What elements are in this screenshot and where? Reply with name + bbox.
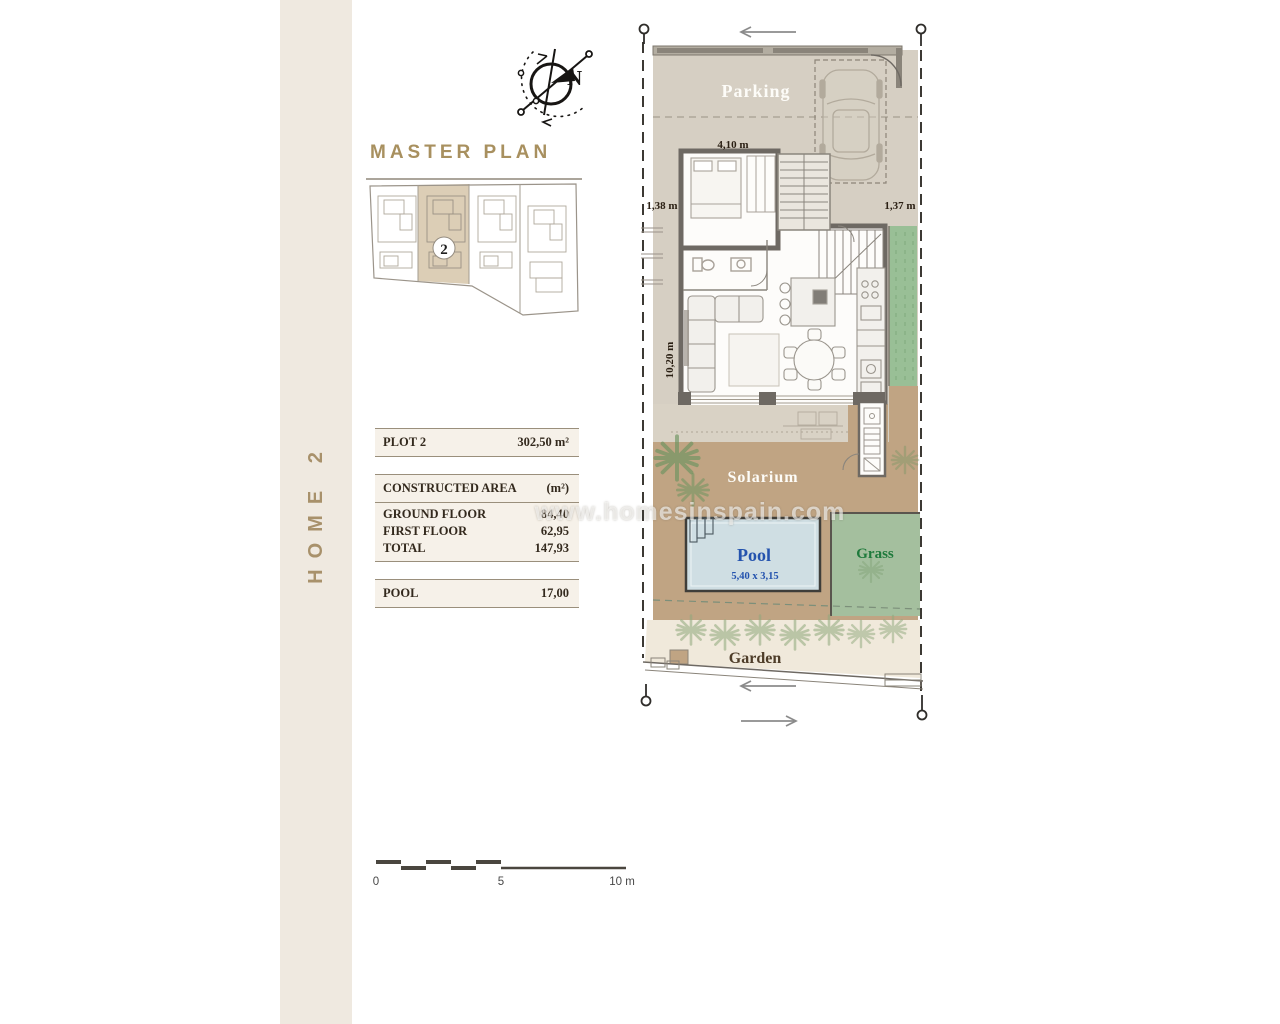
floor-plan: Parking Solarium Pool 5,40 x 3,15 Grass …: [633, 8, 935, 730]
solarium-label: Solarium: [727, 469, 798, 486]
plot-label: PLOT 2: [383, 435, 426, 450]
bed: [691, 158, 741, 218]
kitchen-island: [780, 278, 835, 326]
plot1-house-sketch: [378, 196, 416, 268]
pool-size-label: 5,40 x 3,15: [731, 571, 778, 582]
plot-row: PLOT 2 302,50 m²: [375, 428, 579, 457]
pool-value: 17,00: [541, 586, 569, 601]
area-header-unit: (m²): [547, 481, 570, 496]
dim-top-width: 4,10 m: [717, 139, 748, 151]
dim-right-setback: 1,37 m: [884, 200, 915, 212]
site-boundary: [370, 184, 578, 315]
north-label: N: [567, 66, 582, 90]
master-plan-thumbnail: 2: [366, 178, 582, 324]
street-arrow-bottom-left: [741, 681, 796, 691]
area-header-label: CONSTRUCTED AREA: [383, 481, 517, 496]
watermark: www.homesinspain.com: [440, 498, 940, 527]
highlighted-plot-2: [418, 184, 469, 284]
compass-rose: N: [505, 34, 617, 140]
plot4-house-sketch: [528, 206, 566, 292]
pool-row: POOL 17,00: [375, 579, 579, 608]
scale-start: 0: [373, 876, 379, 888]
grass-label: Grass: [856, 546, 894, 562]
pool-label: Pool: [737, 545, 771, 565]
rug: [729, 334, 779, 386]
plot-badge-number: 2: [440, 242, 448, 258]
table-row: TOTAL 147,93: [375, 540, 579, 557]
scale-bar: 0 5 10 m: [366, 848, 646, 892]
scale-mid: 5: [498, 876, 504, 888]
plot3-house-sketch: [478, 196, 516, 268]
garden-label: Garden: [729, 650, 782, 667]
dim-left-setback: 1,38 m: [646, 200, 677, 212]
kitchen-counter: [857, 268, 885, 400]
dim-side-height: 10,20 m: [664, 342, 676, 379]
scale-end: 10 m: [609, 876, 635, 888]
street-arrow-top: [741, 27, 796, 37]
pool-label: POOL: [383, 586, 418, 601]
sidebar-strip: HOME 2: [280, 0, 352, 1024]
parking-label: Parking: [721, 81, 790, 101]
plot-value: 302,50 m²: [517, 435, 569, 450]
exterior-stairs: [778, 154, 830, 230]
home-number-label: HOME 2: [305, 441, 328, 584]
street-arrow-bottom-right: [741, 716, 796, 726]
page-title: MASTER PLAN: [370, 142, 551, 164]
